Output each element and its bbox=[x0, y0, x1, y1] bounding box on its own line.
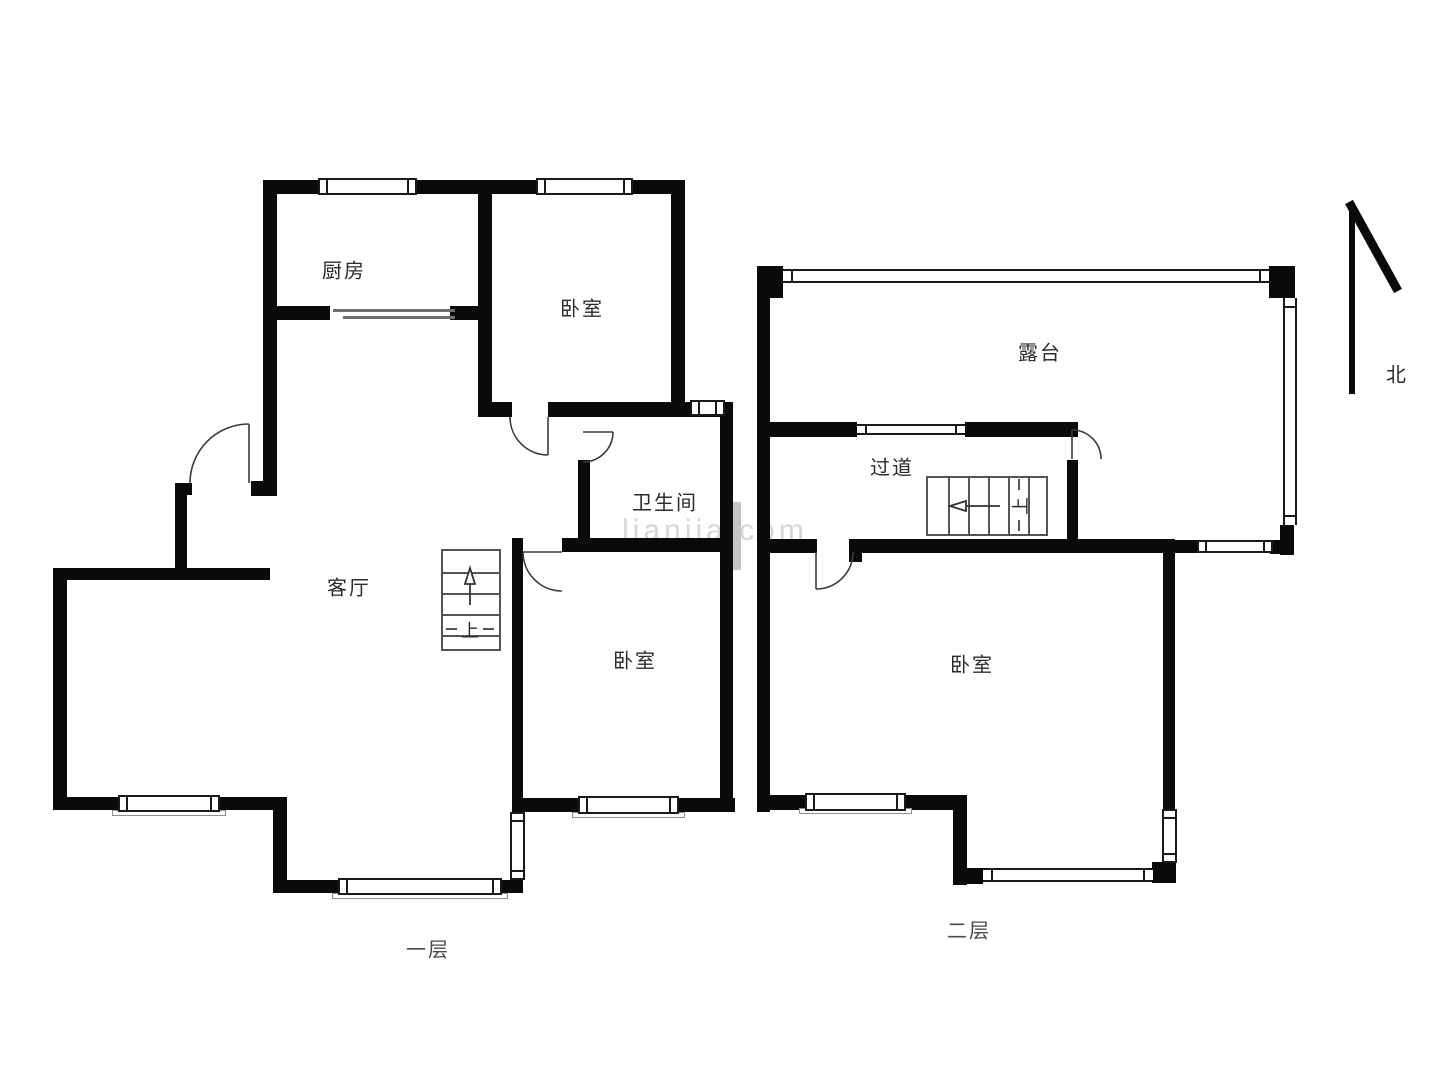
door-arc bbox=[583, 432, 613, 462]
light-well-shading bbox=[733, 502, 741, 570]
window bbox=[1162, 809, 1177, 863]
room-label-living-room: 客厅 bbox=[327, 572, 371, 601]
stair-tread bbox=[443, 572, 499, 574]
wall bbox=[757, 539, 817, 553]
wall bbox=[175, 483, 192, 495]
stair-tread bbox=[948, 478, 950, 534]
stair-tread bbox=[443, 614, 499, 616]
wall bbox=[965, 422, 1078, 437]
wall bbox=[578, 460, 590, 540]
wall bbox=[757, 298, 770, 812]
stair-tread bbox=[443, 593, 499, 595]
wall bbox=[1152, 862, 1176, 883]
window bbox=[338, 878, 502, 895]
wall bbox=[53, 568, 67, 810]
stair-dash bbox=[446, 628, 457, 630]
window bbox=[510, 812, 525, 880]
window bbox=[805, 793, 906, 811]
stairs-up-label-floor1: 上 bbox=[461, 617, 479, 643]
wall bbox=[478, 194, 492, 417]
wall bbox=[849, 539, 1175, 553]
window bbox=[783, 269, 1269, 283]
floor2-caption: 二层 bbox=[947, 915, 991, 944]
wall bbox=[1163, 539, 1175, 809]
wall bbox=[512, 538, 523, 798]
wall bbox=[263, 194, 277, 484]
room-label-bedroom2f: 卧室 bbox=[950, 649, 994, 678]
wall bbox=[720, 402, 733, 812]
window bbox=[983, 868, 1153, 882]
room-label-bathroom: 卫生间 bbox=[632, 487, 698, 516]
wall bbox=[273, 797, 287, 893]
floorplan: lianjia.com bbox=[0, 0, 1440, 1080]
stairs-up-label-floor2: 上 bbox=[1007, 497, 1033, 515]
wall bbox=[849, 539, 862, 562]
wall bbox=[562, 538, 733, 552]
wall bbox=[1175, 540, 1197, 553]
window bbox=[1283, 298, 1297, 525]
stair-dash bbox=[1018, 520, 1020, 531]
door-arc bbox=[523, 552, 562, 591]
wall bbox=[757, 266, 783, 298]
north-arrow bbox=[1349, 202, 1398, 291]
stair-dash bbox=[1018, 479, 1020, 490]
room-label-corridor: 过道 bbox=[870, 452, 914, 481]
room-label-bedroom-top: 卧室 bbox=[560, 293, 604, 322]
wall bbox=[175, 495, 187, 570]
wall bbox=[1269, 266, 1295, 298]
floor1-caption: 一层 bbox=[406, 934, 450, 963]
wall bbox=[53, 568, 270, 580]
wall bbox=[263, 306, 330, 320]
wall bbox=[671, 194, 685, 415]
room-label-terrace: 露台 bbox=[1018, 337, 1062, 366]
door-arc bbox=[510, 417, 548, 455]
wall bbox=[1280, 525, 1294, 555]
door-arc bbox=[190, 424, 249, 483]
wall bbox=[757, 422, 857, 437]
stair-tread bbox=[988, 478, 990, 534]
north-label: 北 bbox=[1386, 359, 1408, 388]
sliding-door bbox=[343, 316, 455, 319]
stair-dash bbox=[483, 628, 494, 630]
wall bbox=[953, 868, 983, 884]
room-label-bedroom-bottom: 卧室 bbox=[613, 645, 657, 674]
window bbox=[536, 178, 633, 195]
sliding-door bbox=[333, 309, 455, 312]
room-label-kitchen: 厨房 bbox=[322, 255, 366, 284]
window bbox=[118, 795, 220, 812]
wall bbox=[480, 402, 512, 417]
door-arc bbox=[816, 552, 853, 589]
window bbox=[578, 796, 679, 814]
stair-tread bbox=[968, 478, 970, 534]
window bbox=[857, 424, 965, 435]
window bbox=[690, 400, 725, 416]
wall bbox=[251, 481, 277, 496]
window bbox=[318, 178, 417, 195]
window bbox=[1197, 540, 1273, 553]
